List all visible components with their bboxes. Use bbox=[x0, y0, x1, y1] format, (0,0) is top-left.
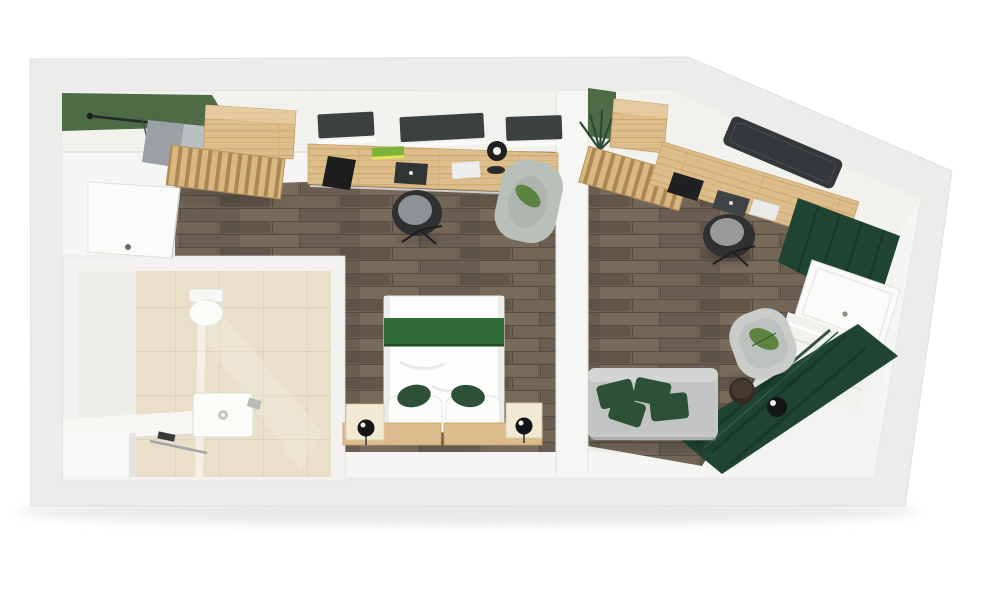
floor-plan-render bbox=[0, 0, 1000, 606]
window-pane-2 bbox=[399, 113, 484, 142]
entrance-door bbox=[88, 182, 180, 258]
sphere-lamp-left bbox=[358, 420, 375, 437]
desk-green-folder bbox=[372, 146, 404, 157]
door-handle bbox=[125, 244, 131, 250]
sphere-lamp-right bbox=[516, 418, 533, 435]
window-pane-3 bbox=[506, 115, 563, 141]
desk-bag bbox=[322, 156, 356, 190]
balcony-door-handle bbox=[842, 311, 847, 316]
window-pane-1 bbox=[317, 112, 374, 139]
sofa-cushion-3 bbox=[649, 392, 690, 422]
sphere-lamp-second bbox=[767, 397, 787, 417]
bathroom-bench bbox=[63, 433, 135, 477]
floor-plan-svg bbox=[0, 0, 1000, 606]
partition-wall bbox=[556, 94, 588, 474]
coat-rail-knob bbox=[87, 113, 93, 119]
bed-green-runner bbox=[384, 318, 504, 346]
desk-papers bbox=[451, 161, 480, 179]
